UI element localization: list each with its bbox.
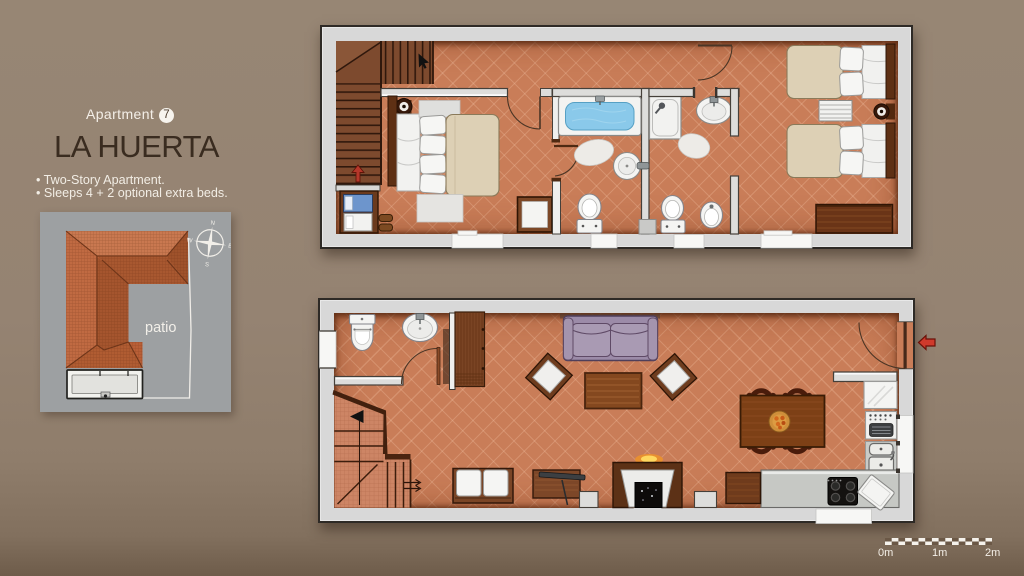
- svg-text:E: E: [228, 244, 231, 251]
- svg-text:W: W: [186, 238, 193, 245]
- svg-text:patio: patio: [145, 320, 176, 336]
- svg-text:S: S: [204, 262, 209, 269]
- svg-text:2m: 2m: [985, 547, 1000, 559]
- svg-text:N: N: [210, 220, 215, 227]
- svg-text:1m: 1m: [932, 547, 947, 559]
- svg-text:0m: 0m: [878, 547, 893, 559]
